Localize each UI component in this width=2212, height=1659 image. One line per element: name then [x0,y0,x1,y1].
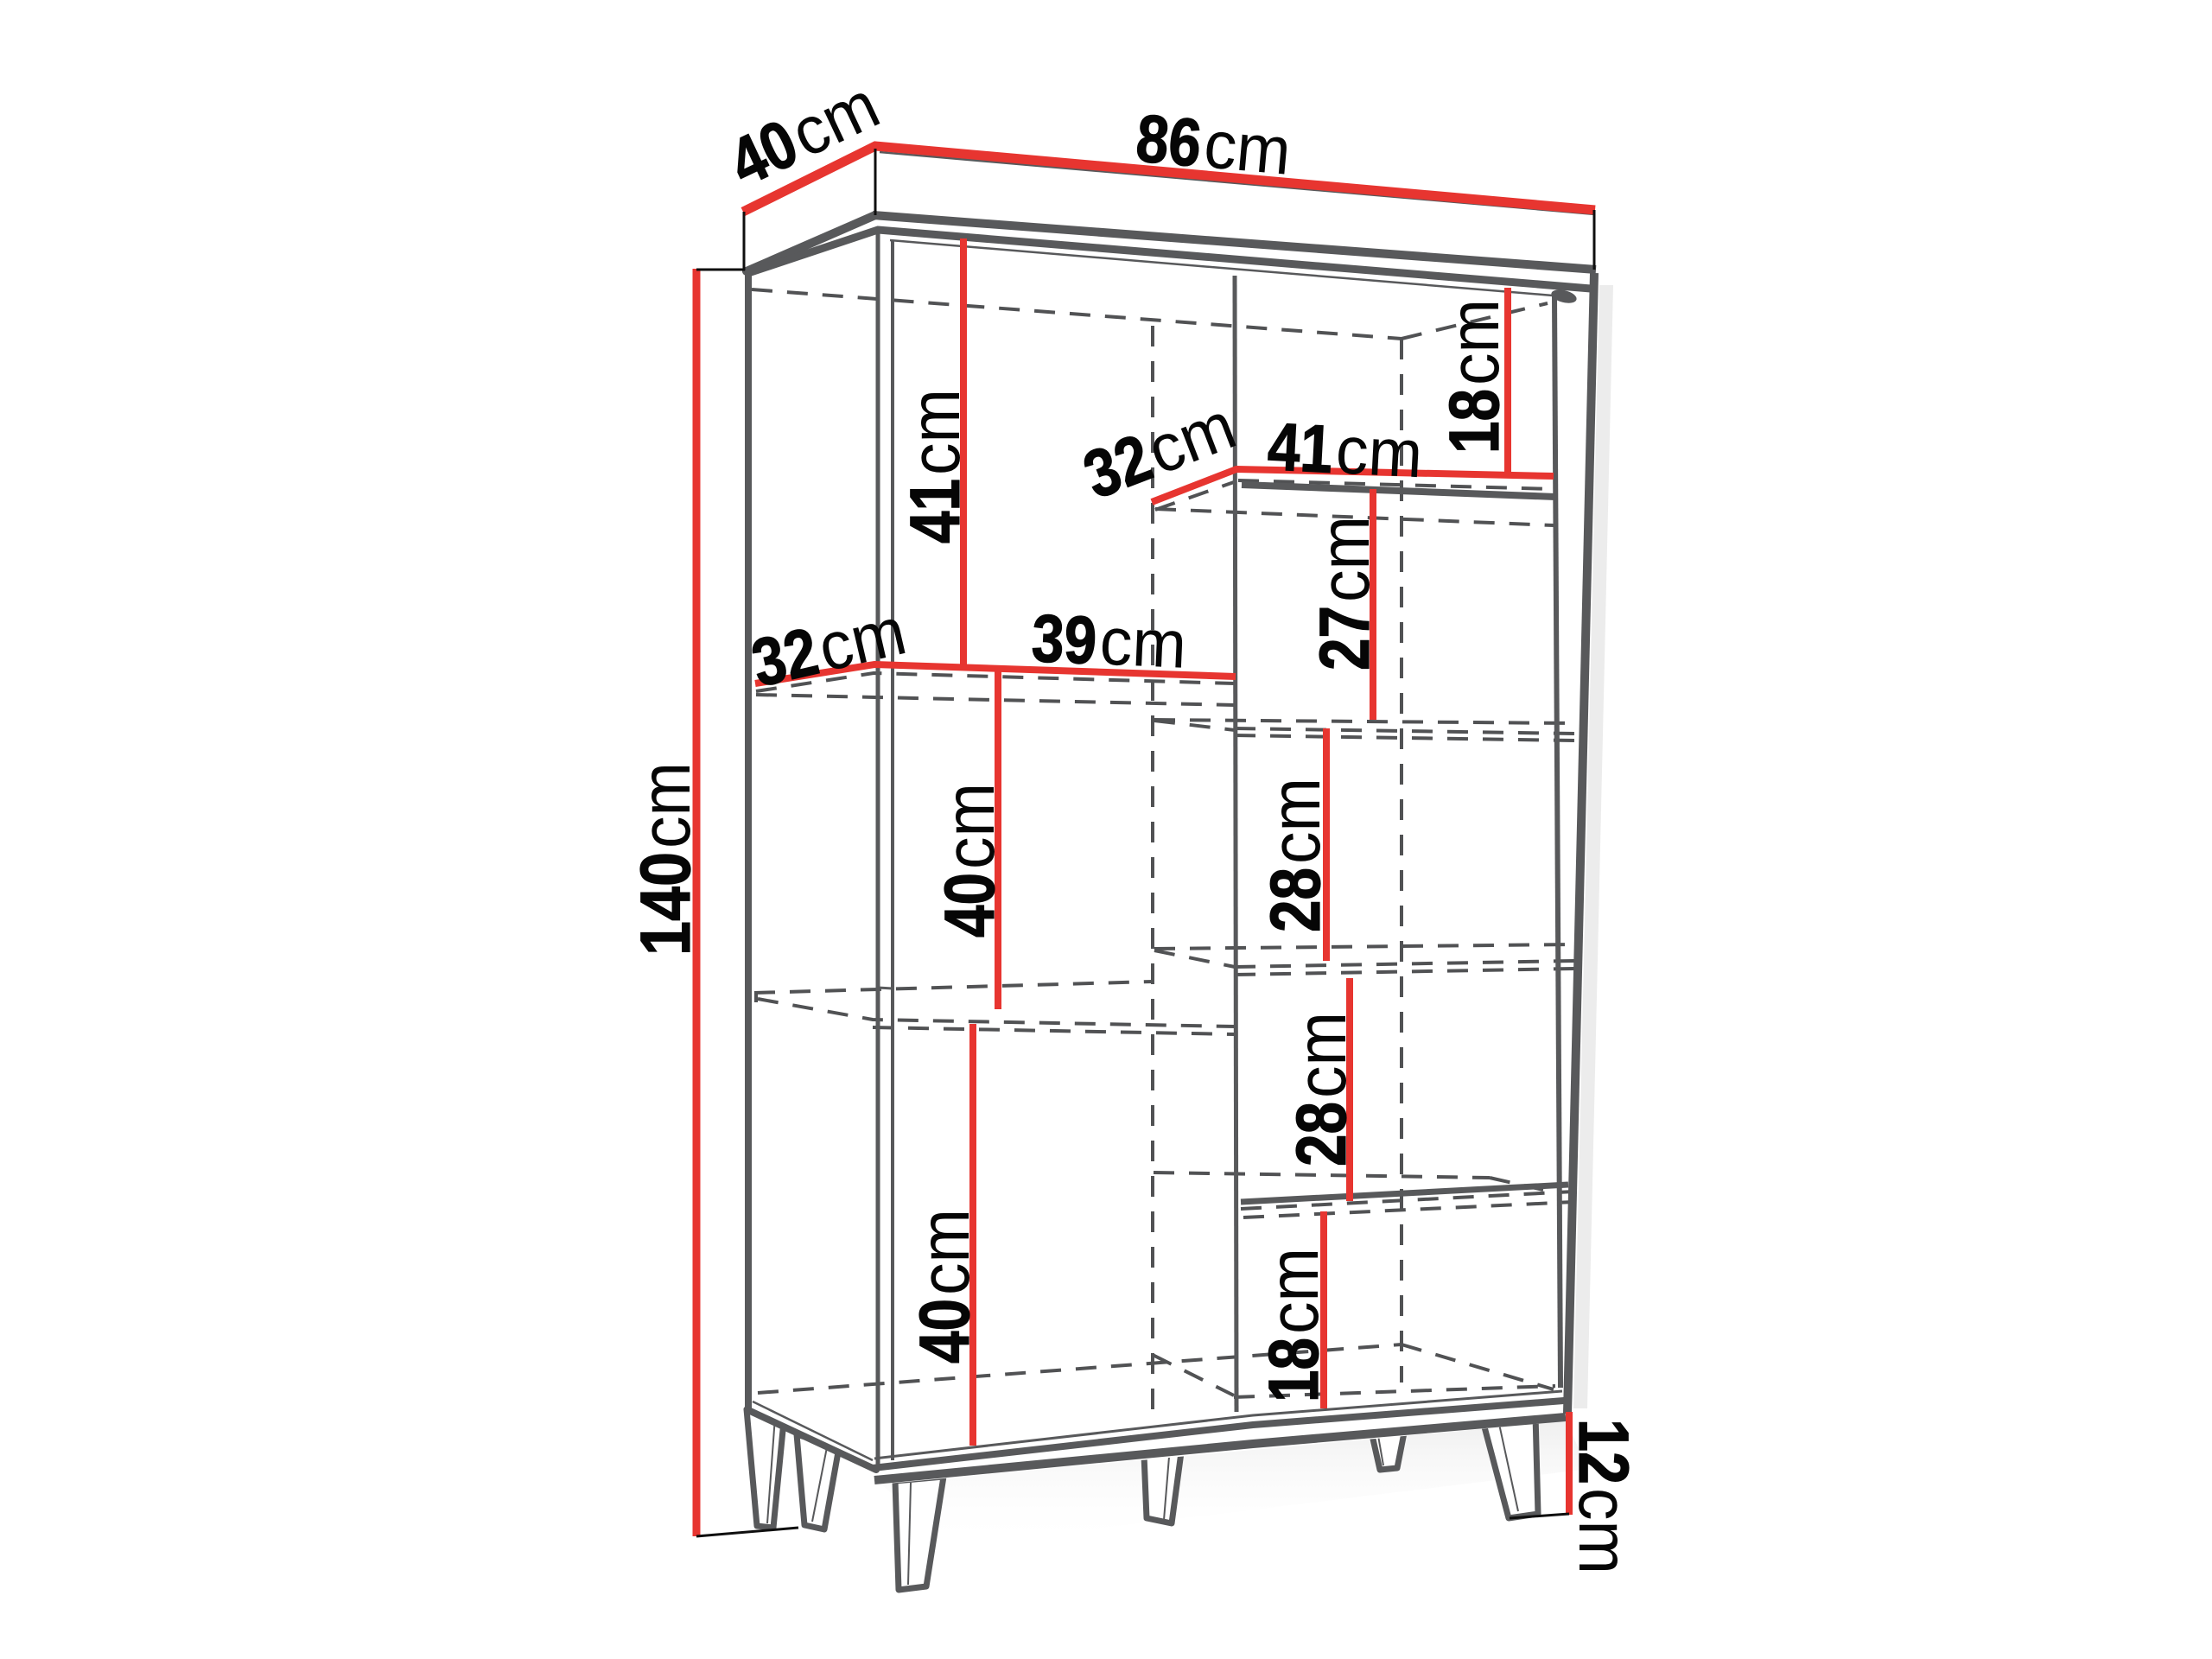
svg-text:cm: cm [1564,1488,1643,1574]
svg-text:18: 18 [1435,389,1514,454]
svg-text:cm: cm [1256,778,1335,864]
svg-text:40: 40 [906,1299,984,1363]
svg-text:140: 140 [626,852,705,956]
svg-text:41: 41 [896,479,975,543]
svg-text:27: 27 [1306,606,1384,671]
svg-text:cm: cm [1334,411,1424,492]
svg-text:cm: cm [931,783,1009,869]
svg-text:28: 28 [1282,1102,1361,1166]
svg-text:41: 41 [1266,408,1335,487]
svg-text:cm: cm [1282,1012,1361,1098]
svg-text:cm: cm [906,1209,984,1295]
svg-text:12: 12 [1564,1419,1643,1484]
svg-text:cm: cm [626,762,705,849]
svg-text:86: 86 [1133,99,1205,181]
svg-text:cm: cm [1435,299,1514,385]
svg-text:cm: cm [1255,1248,1333,1334]
svg-text:cm: cm [1306,516,1384,602]
svg-text:cm: cm [1098,603,1188,683]
svg-text:cm: cm [896,389,975,475]
svg-text:40: 40 [931,873,1009,938]
svg-text:cm: cm [1201,105,1294,189]
svg-text:39: 39 [1030,600,1098,678]
svg-text:18: 18 [1255,1338,1333,1402]
svg-text:28: 28 [1256,868,1335,932]
